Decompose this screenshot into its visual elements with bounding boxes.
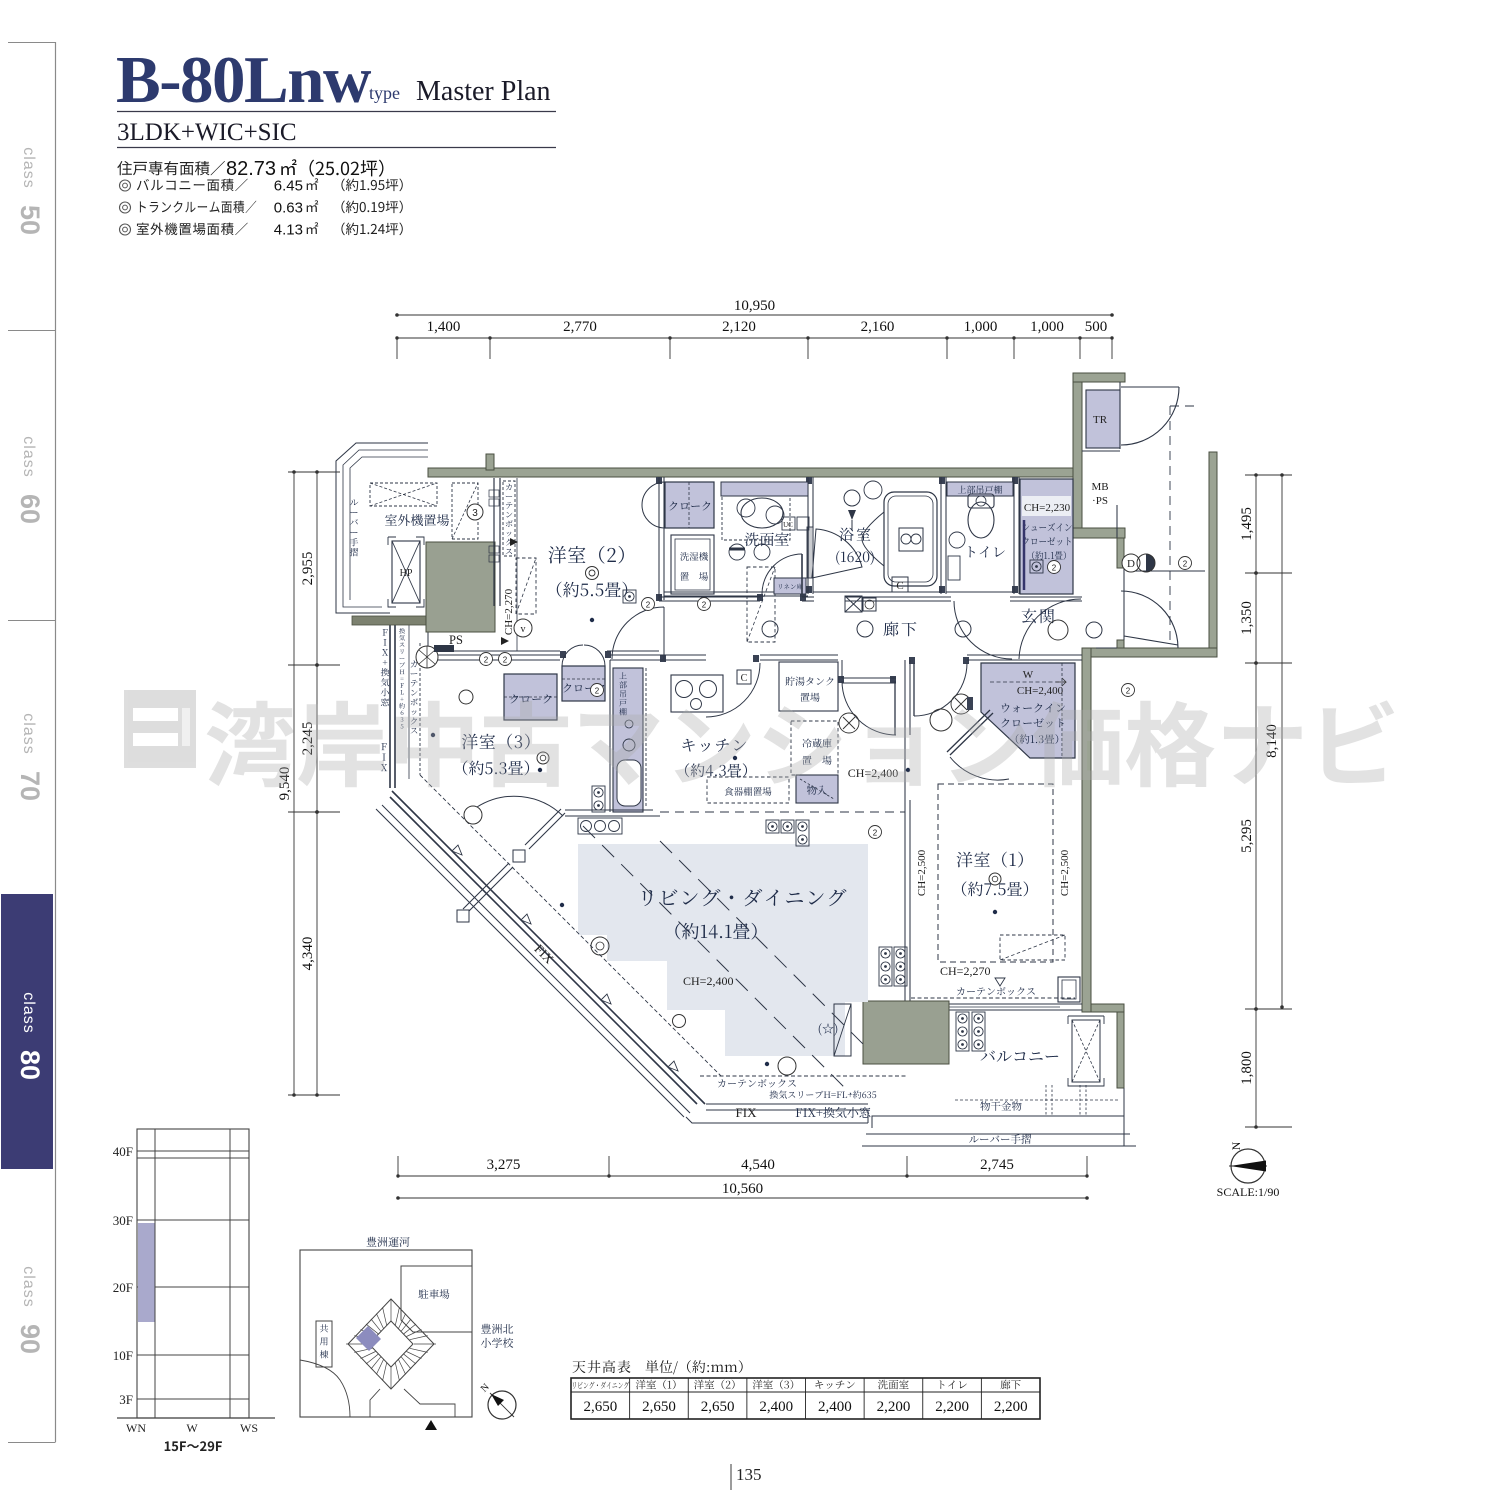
- svg-text:2,160: 2,160: [861, 319, 895, 335]
- svg-text:10,950: 10,950: [734, 298, 775, 314]
- svg-text:2,745: 2,745: [980, 1157, 1014, 1173]
- svg-text:2,400: 2,400: [818, 1399, 852, 1415]
- svg-text:0.63: 0.63: [274, 200, 303, 217]
- svg-text:2: 2: [484, 656, 489, 665]
- svg-text:2: 2: [646, 601, 651, 610]
- svg-text:1,400: 1,400: [427, 319, 461, 335]
- svg-text:10F: 10F: [113, 1348, 133, 1363]
- svg-text:N: N: [1229, 1141, 1243, 1150]
- svg-text:PS: PS: [449, 633, 463, 647]
- svg-text:Master Plan: Master Plan: [416, 76, 551, 107]
- svg-text:B-80Lnw: B-80Lnw: [116, 43, 372, 117]
- svg-text:10,560: 10,560: [722, 1181, 763, 1197]
- svg-text:FIX: FIX: [531, 941, 557, 967]
- svg-text:D: D: [1127, 558, 1135, 570]
- svg-text:40F: 40F: [113, 1144, 133, 1159]
- svg-text:W: W: [186, 1421, 198, 1435]
- svg-text:class: class: [20, 436, 37, 477]
- svg-text:500: 500: [1085, 319, 1108, 335]
- svg-text:82.73: 82.73: [226, 158, 276, 180]
- svg-text:CH=2,270: CH=2,270: [940, 964, 990, 978]
- svg-text:HP: HP: [400, 568, 413, 579]
- svg-text:2,200: 2,200: [877, 1399, 911, 1415]
- svg-text:WS: WS: [240, 1421, 258, 1435]
- svg-text:3LDK+WIC+SIC: 3LDK+WIC+SIC: [117, 119, 297, 146]
- svg-text:1,495: 1,495: [1239, 507, 1255, 541]
- svg-text:2: 2: [1183, 560, 1188, 569]
- svg-text:2: 2: [702, 601, 707, 610]
- svg-text:FIX: FIX: [736, 1105, 758, 1120]
- svg-text:SCALE:1/90: SCALE:1/90: [1217, 1185, 1280, 1199]
- svg-text:3F: 3F: [119, 1392, 133, 1407]
- svg-text:CH=2,500: CH=2,500: [916, 849, 928, 896]
- svg-text:2,200: 2,200: [935, 1399, 969, 1415]
- svg-text:90: 90: [15, 1324, 45, 1354]
- svg-text:4,540: 4,540: [741, 1157, 775, 1173]
- svg-text:70: 70: [15, 771, 45, 801]
- svg-text:CH=2,270: CH=2,270: [503, 588, 515, 635]
- svg-text:class: class: [20, 1266, 37, 1307]
- svg-text:TR: TR: [1093, 414, 1108, 426]
- svg-text:1,350: 1,350: [1239, 601, 1255, 635]
- svg-text:UC: UC: [783, 521, 793, 529]
- svg-text:type: type: [369, 83, 400, 103]
- svg-text:CH=2,230: CH=2,230: [1024, 502, 1071, 514]
- svg-text:5,295: 5,295: [1239, 819, 1255, 853]
- svg-text:20F: 20F: [113, 1280, 133, 1295]
- svg-text:class: class: [20, 992, 37, 1033]
- svg-text:C: C: [896, 580, 903, 592]
- svg-text:1,800: 1,800: [1239, 1051, 1255, 1085]
- svg-text:2,650: 2,650: [642, 1399, 676, 1415]
- svg-text:N: N: [479, 1382, 492, 1395]
- svg-text:·PS: ·PS: [1092, 495, 1108, 507]
- svg-text:2,770: 2,770: [563, 319, 597, 335]
- svg-text:6.45: 6.45: [274, 178, 303, 195]
- svg-text:2: 2: [873, 829, 878, 838]
- svg-text:2,120: 2,120: [722, 319, 756, 335]
- svg-text:CH=2,400: CH=2,400: [683, 974, 733, 988]
- svg-text:3,275: 3,275: [487, 1157, 521, 1173]
- svg-text:CH=2,400: CH=2,400: [1017, 685, 1064, 697]
- svg-text:2: 2: [595, 687, 600, 696]
- svg-text:2,400: 2,400: [759, 1399, 793, 1415]
- svg-text:2,650: 2,650: [701, 1399, 735, 1415]
- svg-text:4,340: 4,340: [300, 937, 316, 971]
- svg-text:1,000: 1,000: [964, 319, 998, 335]
- svg-text:2,955: 2,955: [300, 552, 316, 586]
- svg-text:2: 2: [503, 656, 508, 665]
- svg-text:135: 135: [736, 1465, 762, 1484]
- svg-text:2: 2: [1052, 564, 1057, 573]
- svg-text:2,650: 2,650: [583, 1399, 617, 1415]
- svg-text:C: C: [741, 673, 748, 684]
- svg-text:2,200: 2,200: [994, 1399, 1028, 1415]
- svg-text:80: 80: [15, 1050, 45, 1080]
- svg-text:1,000: 1,000: [1030, 319, 1064, 335]
- svg-text:30F: 30F: [113, 1213, 133, 1228]
- svg-text:WN: WN: [126, 1421, 146, 1435]
- svg-text:MB: MB: [1091, 481, 1108, 493]
- svg-text:CH=2,500: CH=2,500: [1059, 849, 1071, 896]
- svg-text:4.13: 4.13: [274, 222, 303, 239]
- svg-text:W: W: [1023, 669, 1034, 681]
- svg-text:class: class: [20, 713, 37, 754]
- svg-text:3: 3: [472, 508, 478, 519]
- svg-text:2: 2: [1126, 687, 1131, 696]
- svg-text:50: 50: [15, 205, 45, 235]
- svg-text:class: class: [20, 147, 37, 188]
- svg-text:v: v: [521, 624, 526, 635]
- svg-text:60: 60: [15, 494, 45, 524]
